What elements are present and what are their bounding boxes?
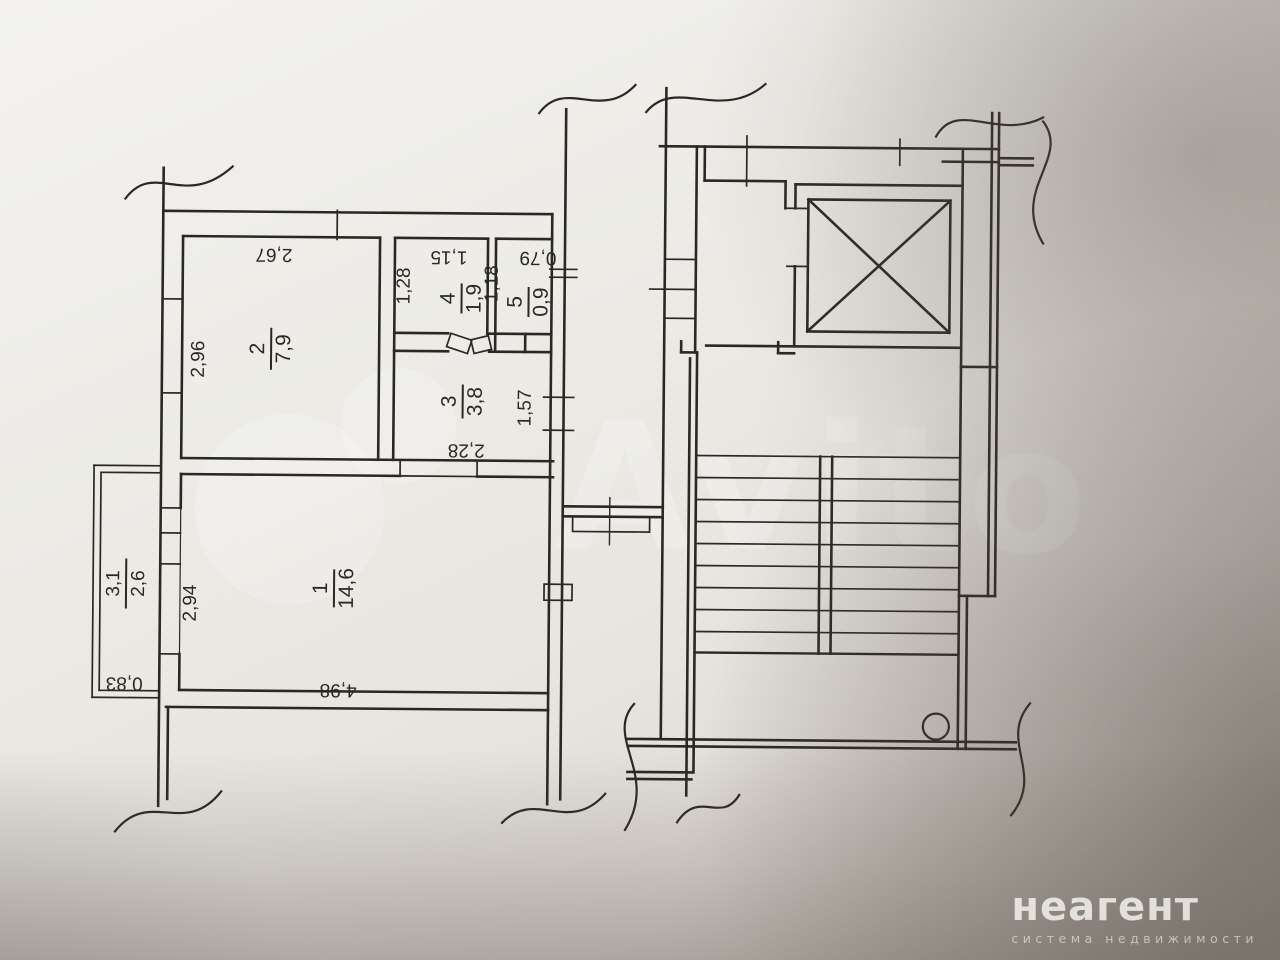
room-2-area: 7,9 xyxy=(272,334,295,363)
dim-2-67: 2,67 xyxy=(255,244,292,265)
room-3-area: 3,8 xyxy=(464,387,487,416)
balcony-label: 3,1 2,6 xyxy=(103,559,149,607)
elevator-door-jambs xyxy=(787,208,809,266)
avito-logo-bubble-small xyxy=(340,367,457,484)
floor-plan-drawing: Avito xyxy=(0,0,1280,960)
elevator-lobby-walls xyxy=(658,146,999,355)
balcony-upper-value: 3,1 xyxy=(103,570,124,597)
elevator-shaft xyxy=(786,184,962,348)
dim-0-79: 0,79 xyxy=(519,247,556,268)
dim-2-94: 2,94 xyxy=(180,584,201,622)
room-1-number: 1 xyxy=(309,582,332,594)
room-5-number: 5 xyxy=(503,296,526,308)
room-2-label: 2 7,9 xyxy=(246,329,295,369)
door-leaves xyxy=(446,333,491,354)
balcony-lower-value: 2,6 xyxy=(128,570,149,597)
dim-1-57: 1,57 xyxy=(514,389,535,426)
dim-0-83: 0,83 xyxy=(106,672,143,693)
room-5-area: 0,9 xyxy=(529,287,552,316)
garbage-chute-circle xyxy=(923,713,949,739)
dim-1-28: 1,28 xyxy=(394,267,415,304)
room-4-label: 4 1,9 xyxy=(436,284,485,314)
dim-1-15: 1,15 xyxy=(430,246,467,267)
dim-4-98: 4,98 xyxy=(320,679,357,700)
floorplan-photo-page: { "document": { "type": "apartment floor… xyxy=(0,0,1280,960)
room-1-area: 14,6 xyxy=(335,568,358,609)
room-3-number: 3 xyxy=(438,395,461,407)
room-5-label: 5 0,9 xyxy=(503,287,552,317)
dim-1-18: 1,18 xyxy=(482,265,503,302)
dim-2-96: 2,96 xyxy=(188,341,209,378)
dim-2-28: 2,28 xyxy=(448,439,485,460)
elevator-x-mark xyxy=(807,199,950,332)
avito-watermark-text: Avito xyxy=(555,386,1094,594)
room-2-number: 2 xyxy=(246,343,269,355)
room-4-number: 4 xyxy=(437,292,460,304)
